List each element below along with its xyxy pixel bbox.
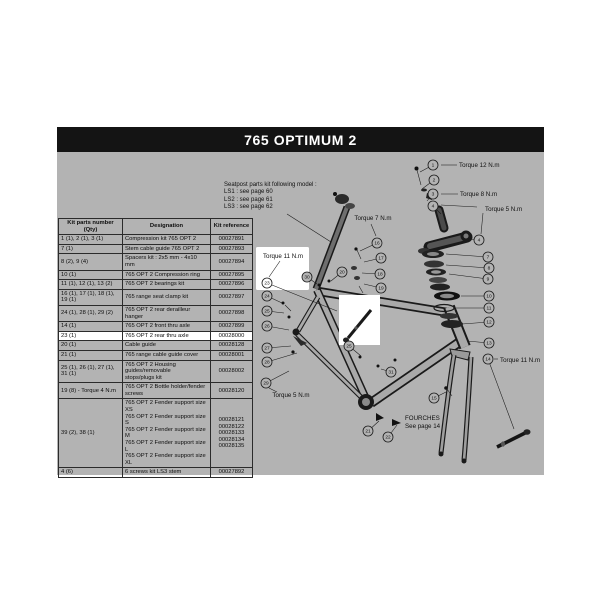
table-row: 19 (8) - Torque 4 N.m765 OPT 2 Bottle ho… [59, 383, 253, 399]
callout-number: 19 [378, 286, 384, 292]
callout-number: 4 [432, 204, 435, 210]
cell-desig: 765 OPT 2 Housing guides/removable stops… [123, 360, 211, 383]
table-header-row: Kit parts number (Qty) Designation Kit r… [59, 219, 253, 235]
cell-parts: 19 (8) - Torque 4 N.m [59, 383, 123, 399]
cell-ref: 00027892 [211, 468, 253, 478]
callout-number: 15 [431, 396, 437, 402]
table-row: 24 (1), 28 (1), 29 (2)765 OPT 2 rear der… [59, 305, 253, 321]
cell-ref: 00028120 [211, 383, 253, 399]
callout-number: 11 [487, 306, 492, 312]
table-row: 1 (1), 2 (1), 3 (1)Compression kit 765 O… [59, 235, 253, 245]
torque-label: Torque 8 N.m [460, 191, 497, 198]
cell-ref: 00027898 [211, 305, 253, 321]
callout-number: 22 [385, 435, 391, 441]
callout-number: 16 [374, 241, 380, 247]
cell-ref: 00027891 [211, 235, 253, 245]
callout-number: 23 [264, 281, 270, 287]
cell-parts: 25 (1), 26 (1), 27 (1), 31 (1) [59, 360, 123, 383]
cell-parts: 20 (1) [59, 341, 123, 351]
callout-number: 13 [486, 341, 492, 347]
cell-parts: 23 (1) [59, 331, 123, 341]
cell-desig: 765 range cable guide cover [123, 350, 211, 360]
cell-desig: Stem cable guide 765 OPT 2 [123, 244, 211, 254]
table-row: 10 (1)765 OPT 2 Compression ring00027895 [59, 270, 253, 280]
torque-label: Torque 5 N.m [272, 392, 309, 399]
callout-number: 21 [365, 429, 371, 435]
cell-ref: 00027897 [211, 289, 253, 305]
callout-number: 30 [304, 275, 310, 281]
cell-desig: 765 range seat clamp kit [123, 289, 211, 305]
table-row: 39 (2), 38 (1)765 OPT 2 Fender support s… [59, 399, 253, 468]
callout-number: 26 [264, 324, 270, 330]
catalog-sheet: 765 OPTIMUM 2 [57, 127, 544, 475]
cell-desig: Compression kit 765 OPT 2 [123, 235, 211, 245]
seatpost-note-line: LS1 : see page 60 [224, 189, 317, 196]
table-row: 4 (6)6 screws kit LS3 stem00027892 [59, 468, 253, 478]
header-parts-number: Kit parts number (Qty) [59, 219, 123, 235]
callout-number: 28 [264, 360, 270, 366]
callout-number: 1 [432, 163, 435, 169]
table-row: 23 (1)765 OPT 2 rear thru axle00028000 [59, 331, 253, 341]
cell-desig: 765 OPT 2 rear derailleur hanger [123, 305, 211, 321]
callout-number: 24 [264, 294, 270, 300]
cell-ref: 00028128 [211, 341, 253, 351]
table-row: 14 (1)765 OPT 2 front thru axle00027899 [59, 322, 253, 332]
seatpost-note-line: LS3 : see page 62 [224, 204, 317, 211]
cell-desig: 765 OPT 2 Compression ring [123, 270, 211, 280]
cell-desig: 765 OPT 2 Fender support size XS 765 OPT… [123, 399, 211, 468]
callout-number: 7 [487, 255, 490, 261]
cell-ref: 00028000 [211, 331, 253, 341]
cell-ref: 00027899 [211, 322, 253, 332]
torque-label: Torque 5 N.m [485, 206, 522, 213]
seatpost-note-line: LS2 : see page 61 [224, 197, 317, 204]
cell-ref: 00027896 [211, 280, 253, 290]
cell-desig: Spacers kit : 2x5 mm - 4x10 mm [123, 254, 211, 270]
cell-parts: 39 (2), 38 (1) [59, 399, 123, 468]
callout-number: 29 [263, 381, 269, 387]
table-row: 8 (2), 9 (4)Spacers kit : 2x5 mm - 4x10 … [59, 254, 253, 270]
header-kit-reference: Kit reference [211, 219, 253, 235]
cell-parts: 4 (6) [59, 468, 123, 478]
table-row: 11 (1), 12 (1), 13 (2)765 OPT 2 bearings… [59, 280, 253, 290]
table-row: 20 (1)Cable guide00028128 [59, 341, 253, 351]
header-designation: Designation [123, 219, 211, 235]
seatpost-note-line: Seatpost parts kit following model : [224, 182, 317, 189]
callout-number: 9 [487, 277, 490, 283]
cell-ref: 00028001 [211, 350, 253, 360]
callout-number: 31 [388, 370, 394, 376]
callout-number: 18 [377, 272, 383, 278]
callout-number: 10 [486, 294, 492, 300]
fourches-note-line1: FOURCHES [405, 415, 440, 422]
callout-number: 14 [485, 357, 491, 363]
parts-table: Kit parts number (Qty) Designation Kit r… [58, 218, 253, 478]
cell-parts: 21 (1) [59, 350, 123, 360]
callout-number: 27 [264, 346, 270, 352]
cell-ref: 00027894 [211, 254, 253, 270]
page-title: 765 OPTIMUM 2 [57, 127, 544, 152]
cell-desig: 765 OPT 2 front thru axle [123, 322, 211, 332]
table-row: 7 (1)Stem cable guide 765 OPT 200027893 [59, 244, 253, 254]
callout-number: 8 [488, 266, 491, 272]
cell-desig: 6 screws kit LS3 stem [123, 468, 211, 478]
cell-desig: 765 OPT 2 bearings kit [123, 280, 211, 290]
callout-number: 4 [478, 238, 481, 244]
torque-label: Torque 11 N.m [263, 253, 303, 260]
fourches-note-line2: See page 14 [405, 423, 441, 430]
table-row: 16 (1), 17 (1), 18 (1), 19 (1)765 range … [59, 289, 253, 305]
cell-parts: 8 (2), 9 (4) [59, 254, 123, 270]
diagram-canvas: Torque 12 N.mTorque 8 N.mTorque 5 N.mTor… [57, 152, 544, 475]
callout-number: 17 [378, 256, 384, 262]
torque-label: Torque 7 N.m [354, 215, 391, 222]
cell-parts: 7 (1) [59, 244, 123, 254]
cell-ref: 00027895 [211, 270, 253, 280]
callout-number: 25 [264, 309, 270, 315]
cell-parts: 11 (1), 12 (1), 13 (2) [59, 280, 123, 290]
cell-desig: 765 OPT 2 rear thru axle [123, 331, 211, 341]
cell-parts: 24 (1), 28 (1), 29 (2) [59, 305, 123, 321]
cell-parts: 14 (1) [59, 322, 123, 332]
seatpost-note: Seatpost parts kit following model : LS1… [224, 182, 317, 212]
highlight-box-rear-axle [339, 295, 380, 345]
callout-number: 20 [339, 270, 345, 276]
cell-ref: 00028002 [211, 360, 253, 383]
cell-desig: Cable guide [123, 341, 211, 351]
cell-parts: 10 (1) [59, 270, 123, 280]
table-row: 25 (1), 26 (1), 27 (1), 31 (1)765 OPT 2 … [59, 360, 253, 383]
torque-label: Torque 12 N.m [459, 162, 500, 169]
torque-label: Torque 11 N.m [500, 357, 540, 364]
cell-parts: 1 (1), 2 (1), 3 (1) [59, 235, 123, 245]
cell-ref: 00027893 [211, 244, 253, 254]
cell-ref: 00028121 00028122 00028133 00028134 0002… [211, 399, 253, 468]
callout-number: 3 [432, 192, 435, 198]
cell-desig: 765 OPT 2 Bottle holder/fender screws [123, 383, 211, 399]
cell-parts: 16 (1), 17 (1), 18 (1), 19 (1) [59, 289, 123, 305]
callout-number: 25 [346, 344, 352, 350]
table-row: 21 (1)765 range cable guide cover0002800… [59, 350, 253, 360]
page: { "title": "765 OPTIMUM 2", "note": { "l… [0, 0, 600, 600]
callout-number: 12 [486, 320, 492, 326]
callout-number: 2 [433, 178, 436, 184]
